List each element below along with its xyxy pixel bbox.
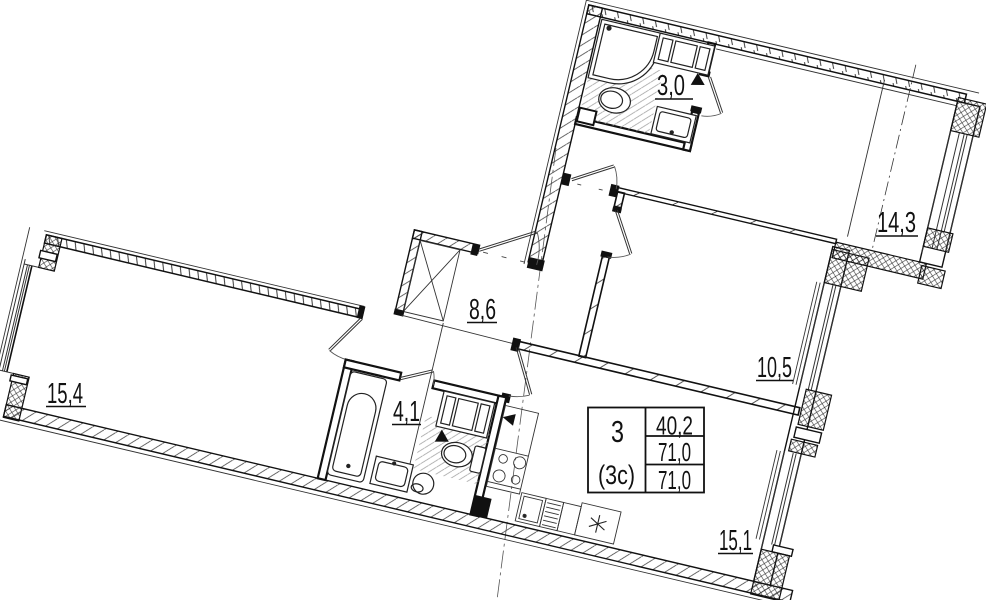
svg-text:10,5: 10,5 bbox=[757, 352, 792, 384]
svg-text:71,0: 71,0 bbox=[658, 465, 691, 495]
svg-text:14,3: 14,3 bbox=[877, 207, 916, 239]
svg-text:40,2: 40,2 bbox=[656, 411, 693, 441]
svg-text:3: 3 bbox=[611, 414, 624, 449]
svg-text:15,4: 15,4 bbox=[47, 378, 83, 410]
svg-text:15,1: 15,1 bbox=[719, 525, 752, 557]
svg-text:71,0: 71,0 bbox=[658, 437, 691, 467]
svg-text:(3c): (3c) bbox=[598, 460, 635, 490]
svg-text:3,0: 3,0 bbox=[657, 70, 685, 102]
svg-text:8,6: 8,6 bbox=[469, 294, 496, 326]
svg-text:4,1: 4,1 bbox=[393, 396, 420, 428]
